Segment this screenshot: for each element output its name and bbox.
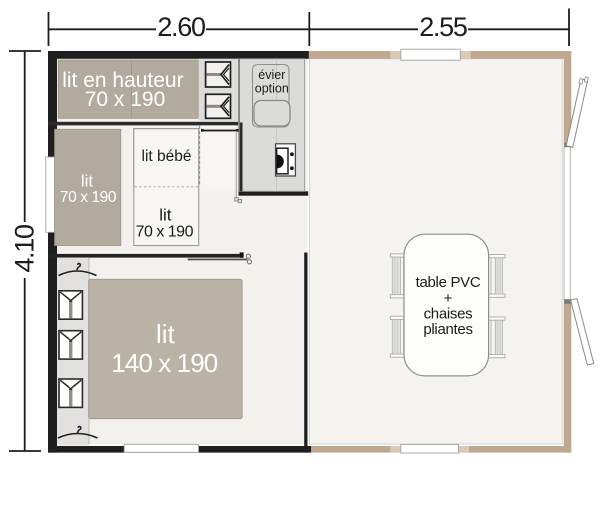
svg-text:70 x 190: 70 x 190 xyxy=(85,88,166,111)
svg-text:70 x 190: 70 x 190 xyxy=(136,224,194,241)
svg-text:140 x 190: 140 x 190 xyxy=(111,348,218,378)
svg-text:évier: évier xyxy=(258,68,285,82)
svg-text:lit: lit xyxy=(81,172,94,191)
svg-text:2.55: 2.55 xyxy=(419,12,467,42)
svg-text:+: + xyxy=(444,290,453,307)
svg-text:lit: lit xyxy=(159,206,172,225)
svg-text:70 x 190: 70 x 190 xyxy=(60,189,117,206)
svg-text:2.60: 2.60 xyxy=(157,12,205,42)
svg-text:table PVC: table PVC xyxy=(416,274,481,291)
svg-text:chaises: chaises xyxy=(424,306,473,323)
svg-text:pliantes: pliantes xyxy=(423,321,472,338)
svg-text:lit bébé: lit bébé xyxy=(142,148,192,165)
svg-text:4.10: 4.10 xyxy=(10,225,40,273)
svg-text:lit: lit xyxy=(156,319,176,349)
svg-text:option: option xyxy=(255,82,289,96)
